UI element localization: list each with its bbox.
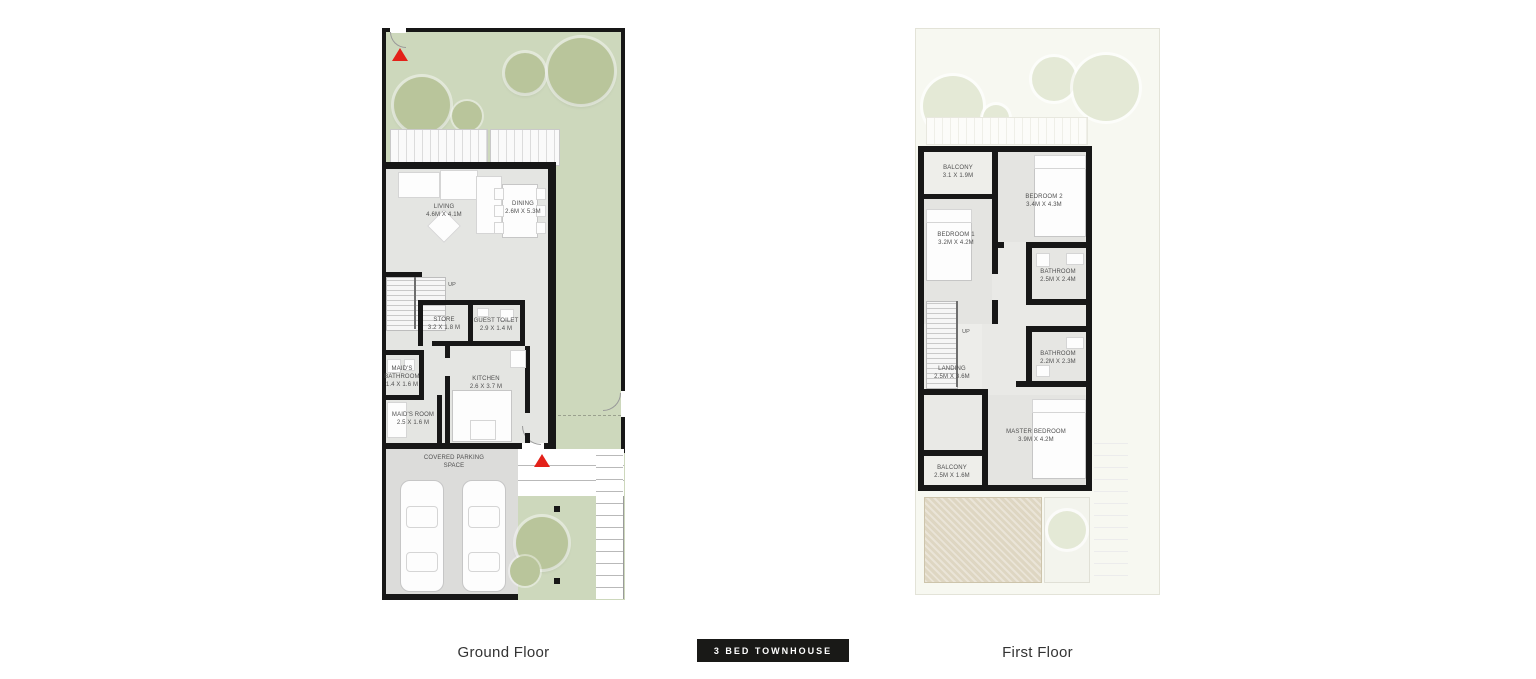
- floorplan-page: LIVING 4.6M X 4.1M DINING 2.6M X 5.3M UP…: [0, 0, 1536, 679]
- room-name: LIVING: [426, 203, 462, 211]
- room-name: BALCONY: [934, 464, 970, 472]
- wall: [621, 28, 625, 453]
- faded-tree-icon: [1073, 55, 1139, 121]
- parking-roof-texture: [924, 497, 1042, 583]
- wall: [918, 389, 988, 395]
- wall: [382, 594, 522, 600]
- kitchen-label: KITCHEN 2.6 X 3.7 M: [470, 375, 502, 391]
- bed-pillows: [1034, 155, 1086, 169]
- bathroom2-label: BATHROOM 2.2M X 2.3M: [1040, 350, 1076, 366]
- room-dims: 2.6 X 3.7 M: [470, 383, 502, 391]
- covered-parking-label: COVERED PARKING SPACE: [419, 454, 489, 470]
- store-room-label: STORE 3.2 X 1.8 M: [428, 316, 460, 332]
- room-name: GUEST TOILET: [470, 317, 522, 325]
- tree-icon: [394, 77, 450, 133]
- room-name: BATHROOM: [1040, 268, 1076, 276]
- wall: [1016, 381, 1092, 387]
- toilet: [1036, 253, 1050, 267]
- room-dims: 2.5M X 1.6M: [934, 472, 970, 480]
- chair: [494, 205, 504, 217]
- room-dims: 2.6M X 5.3M: [505, 208, 541, 216]
- room-dims: 4.6M X 4.1M: [426, 211, 462, 219]
- door-opening: [992, 274, 998, 300]
- up-stairs-label: UP: [962, 329, 970, 335]
- path-line: [558, 415, 621, 416]
- fence-post: [554, 506, 560, 512]
- first-floor-caption: First Floor: [915, 644, 1160, 661]
- room-name: MAID'S ROOM: [390, 411, 436, 419]
- room-name: BEDROOM 1: [937, 231, 974, 239]
- first-floor-plan: BALCONY 3.1 X 1.9M BEDROOM 2 3.4M X 4.3M…: [915, 28, 1160, 595]
- faded-terrace-deck: [926, 117, 1088, 145]
- room-dims: 2.5M X 3.6M: [934, 373, 970, 381]
- gate-opening: [621, 391, 625, 417]
- door-opening: [445, 358, 450, 376]
- wall: [1026, 299, 1092, 305]
- sofa: [398, 172, 440, 198]
- door-swing-arc: [603, 393, 621, 411]
- up-stairs-label: UP: [448, 282, 456, 288]
- master-bedroom-label: MASTER BEDROOM 3.9M X 4.2M: [996, 428, 1076, 444]
- fridge: [510, 350, 526, 368]
- wall: [982, 389, 988, 491]
- room-name: BALCONY: [943, 164, 974, 172]
- wall: [1026, 332, 1032, 387]
- room-dims: 2.2M X 2.3M: [1040, 358, 1076, 366]
- stair-railing: [414, 277, 416, 329]
- dining-room-label: DINING 2.6M X 5.3M: [505, 200, 541, 216]
- sink: [1066, 253, 1084, 265]
- room-dims: 3.2 X 1.8 M: [428, 324, 460, 332]
- terrace-deck: [390, 129, 488, 166]
- bedroom1-label: BEDROOM 1 3.2M X 4.2M: [937, 231, 974, 247]
- red-entrance-marker-icon: [392, 48, 408, 61]
- chair: [494, 222, 504, 234]
- toilet: [1036, 365, 1050, 377]
- wall: [1026, 326, 1092, 332]
- side-path-stripes: [596, 449, 623, 599]
- room-dims: 1.4 X 1.6 M: [384, 381, 420, 389]
- car-rear-window: [468, 552, 500, 572]
- sink: [477, 308, 489, 317]
- maids-room-label: MAID'S ROOM 2.5 X 1.6 M: [390, 411, 436, 427]
- car-rear-window: [406, 552, 438, 572]
- room-name: COVERED PARKING SPACE: [419, 454, 489, 470]
- sofa: [440, 170, 478, 200]
- fence-post: [554, 578, 560, 584]
- room-dims: 3.1 X 1.9M: [943, 172, 974, 180]
- red-entrance-marker-icon: [534, 454, 550, 467]
- wall: [384, 350, 424, 355]
- balcony-label: BALCONY 3.1 X 1.9M: [943, 164, 974, 180]
- chair: [494, 188, 504, 200]
- tree-icon: [505, 53, 545, 93]
- wall: [1086, 146, 1092, 491]
- terrace-deck: [490, 129, 560, 166]
- balcony-label: BALCONY 2.5M X 1.6M: [934, 464, 970, 480]
- stove: [470, 420, 496, 440]
- car-windshield: [406, 506, 438, 528]
- room-dims: 3.4M X 4.3M: [1025, 201, 1062, 209]
- tree-icon: [510, 556, 540, 586]
- wall: [918, 450, 982, 456]
- door-opening: [1004, 242, 1026, 248]
- room-name: MASTER BEDROOM: [996, 428, 1076, 436]
- room-name: BATHROOM: [1040, 350, 1076, 358]
- room-dims: 2.5 X 1.6 M: [390, 419, 436, 427]
- wall: [418, 300, 423, 346]
- wall: [382, 28, 625, 32]
- wall: [1026, 248, 1032, 305]
- living-room-label: LIVING 4.6M X 4.1M: [426, 203, 462, 219]
- bed-townhouse-badge[interactable]: 3 BED TOWNHOUSE: [697, 639, 849, 662]
- wall: [918, 194, 996, 199]
- wall: [384, 162, 556, 169]
- door-swing-arc: [390, 32, 406, 48]
- wall: [437, 395, 442, 443]
- bathroom1-label: BATHROOM 2.5M X 2.4M: [1040, 268, 1076, 284]
- bed-pillows: [1032, 399, 1086, 413]
- room-name: DINING: [505, 200, 541, 208]
- room-name: MAID'S BATHROOM: [384, 365, 420, 381]
- room-dims: 3.2M X 4.2M: [937, 239, 974, 247]
- door-opening: [525, 413, 530, 433]
- badge-label: 3 BED TOWNHOUSE: [714, 646, 832, 656]
- room-dims: 2.9 X 1.4 M: [470, 325, 522, 333]
- bedroom2-label: BEDROOM 2 3.4M X 4.3M: [1025, 193, 1062, 209]
- room-dims: 2.5M X 2.4M: [1040, 276, 1076, 284]
- car-icon: [400, 480, 444, 592]
- bed-pillows: [926, 209, 972, 223]
- landing-label: LANDING 2.5M X 3.6M: [934, 365, 970, 381]
- room-name: STORE: [428, 316, 460, 324]
- wall: [384, 395, 424, 400]
- car-icon: [462, 480, 506, 592]
- car-windshield: [468, 506, 500, 528]
- ground-floor-caption: Ground Floor: [382, 644, 625, 661]
- faded-tree-icon: [1032, 57, 1076, 101]
- tree-icon: [548, 38, 614, 104]
- wall: [548, 164, 556, 449]
- faded-path-stripes: [1094, 437, 1128, 587]
- room-name: LANDING: [934, 365, 970, 373]
- ground-floor-plan: LIVING 4.6M X 4.1M DINING 2.6M X 5.3M UP…: [382, 28, 625, 600]
- maids-bathroom-label: MAID'S BATHROOM 1.4 X 1.6 M: [384, 365, 420, 389]
- room-name: KITCHEN: [470, 375, 502, 383]
- faded-tree-icon: [1048, 511, 1086, 549]
- room-dims: 3.9M X 4.2M: [996, 436, 1076, 444]
- chair: [536, 188, 546, 200]
- wall: [918, 485, 1092, 491]
- tree-icon: [452, 101, 482, 131]
- sink: [1066, 337, 1084, 349]
- chair: [536, 222, 546, 234]
- guest-toilet-label: GUEST TOILET 2.9 X 1.4 M: [470, 317, 522, 333]
- room-name: BEDROOM 2: [1025, 193, 1062, 201]
